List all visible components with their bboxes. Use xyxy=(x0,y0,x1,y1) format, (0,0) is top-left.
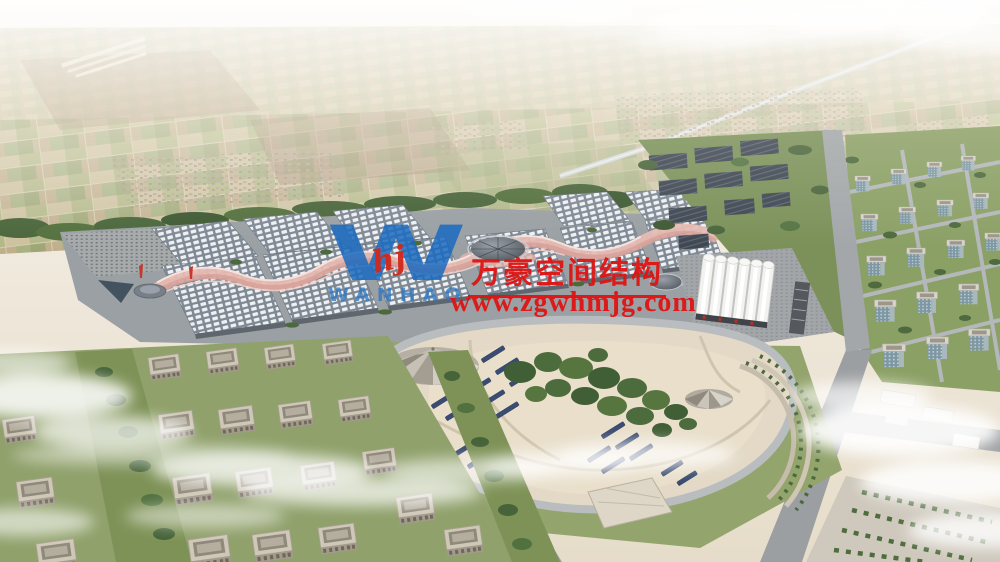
watermark-website: www.zgwhmjg.com xyxy=(450,287,697,319)
global-haze xyxy=(0,0,1000,250)
aerial-rendering: W hj WANHAO 万豪空间结构 www.zgwhmjg.com xyxy=(0,0,1000,562)
white-vaulted-hall xyxy=(695,253,775,328)
entrance-saucer xyxy=(134,284,166,298)
cone-tent-small xyxy=(685,389,733,409)
